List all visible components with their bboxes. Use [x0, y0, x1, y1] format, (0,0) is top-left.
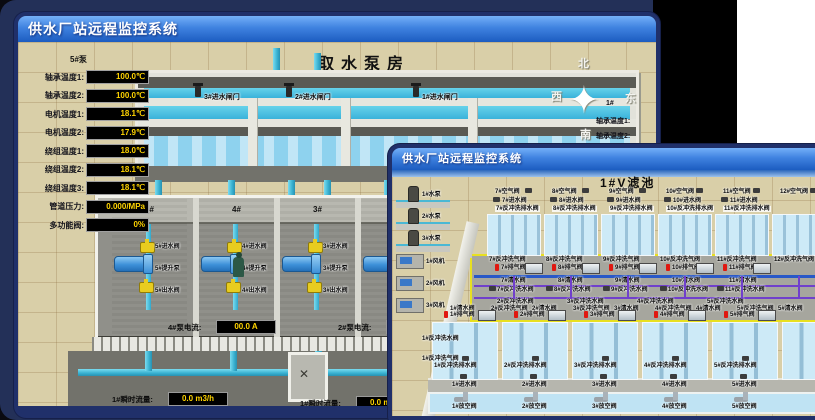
panel-row-value: 17.9℃ — [86, 126, 149, 140]
filter-cell-top[interactable] — [487, 214, 541, 256]
inlet-valve-icon[interactable] — [140, 242, 155, 253]
compass-south: 南 — [580, 126, 591, 142]
drain-valve-icon[interactable] — [602, 356, 609, 361]
inlet-valve-label: 4#进水阀 — [242, 244, 267, 250]
lift-pump-icon[interactable] — [201, 256, 233, 272]
desktop: 供水厂站远程监控系统 取水泵房 — [0, 0, 815, 420]
gate-label: 1#进水闸门 — [422, 94, 458, 101]
pipe-branch — [230, 351, 237, 371]
tank-divider — [341, 98, 350, 169]
inlet-valve-icon[interactable] — [670, 374, 677, 379]
panel-row-value: 18.1℃ — [86, 181, 149, 195]
panel-row-value: 0% — [86, 218, 149, 232]
backwash-water-valve-label: 8#反冲洗水阀 — [554, 287, 591, 293]
panel-row-label: 多功能阀: — [22, 220, 84, 231]
panel-row: 绕组温度2:18.1℃ — [22, 161, 164, 180]
empty-valve-label: 4#放空阀 — [662, 404, 687, 410]
panel-row-label: 轴承温度1: — [22, 72, 84, 83]
backwash-water-valve-label: 9#反冲洗水阀 — [611, 287, 648, 293]
outlet-valve-label: 3#出水阀 — [323, 288, 348, 294]
inlet-valve-label: 3#进水阀 — [592, 382, 617, 388]
panel-row-label: 管道压力: — [22, 201, 84, 212]
panel-row-label: 轴承温度2: — [22, 90, 84, 101]
surge-tank-icon — [618, 310, 636, 321]
tank-water-channel — [144, 106, 630, 119]
surge-tank-icon — [582, 263, 600, 274]
inlet-valve-icon[interactable] — [308, 242, 323, 253]
inlet-valve-icon[interactable] — [600, 374, 607, 379]
flow-meter-label: 1#瞬时流量: — [112, 394, 153, 405]
flow-meter-label: 1#瞬时流量: — [300, 398, 341, 406]
machine-platform — [396, 222, 450, 230]
backwash-pump-icon[interactable] — [408, 208, 419, 224]
backwash-drain-valve-label: 8#反冲洗排水阀 — [552, 206, 597, 212]
filter-cell-top[interactable] — [658, 214, 712, 256]
compass-east: 东 — [625, 90, 636, 106]
flow-meter-device[interactable] — [288, 352, 328, 402]
surge-tank-icon — [548, 310, 566, 321]
outlet-valve-label: 4#出水阀 — [242, 288, 267, 294]
blower-label: 1#风机 — [426, 259, 445, 265]
blower-icon[interactable] — [396, 276, 424, 291]
panel-row: 电机温度1:18.1℃ — [22, 105, 164, 124]
pipe-stub — [324, 180, 331, 196]
inlet-valve-icon[interactable] — [530, 374, 537, 379]
background-white-area — [735, 0, 815, 152]
vent-valve-label: 4#排气阀 — [660, 312, 685, 318]
filter-cell-top[interactable] — [601, 214, 655, 256]
blower-label: 3#风机 — [426, 303, 445, 309]
inlet-valve-label: 4#进水阀 — [662, 382, 687, 388]
backwash-pump-label: 3#水泵 — [422, 236, 441, 242]
vent-valve-label: 3#排气阀 — [590, 312, 615, 318]
backwash-drain-valve-label: 5#反冲洗排水阀 — [714, 363, 757, 369]
surge-tank-icon — [525, 263, 543, 274]
drain-elbow-pipe — [664, 397, 678, 402]
vent-valve-label: 2#排气阀 — [520, 312, 545, 318]
machine-platform — [396, 200, 450, 208]
panel-row: 管道压力:0.000/MPa — [22, 198, 164, 217]
air-valve-label: 7#空气阀 — [495, 189, 520, 195]
air-valve-icon[interactable] — [525, 188, 532, 193]
vent-valve-icon[interactable] — [584, 311, 588, 318]
tank-wall — [138, 77, 636, 88]
tank-wall — [138, 127, 636, 136]
gate-valve-icon[interactable] — [413, 86, 419, 97]
side-panel-label: 轴承温度1: — [596, 116, 630, 126]
backwash-air-valve-label: 11#反冲洗气阀 — [717, 257, 757, 263]
filter-cell-bottom[interactable] — [782, 322, 815, 380]
compass-north: 北 — [578, 55, 589, 71]
surge-tank-icon — [753, 263, 771, 274]
gate-valve-icon[interactable] — [195, 86, 201, 97]
air-valve-label: 9#空气阀 — [609, 189, 634, 195]
air-valve-icon[interactable] — [582, 188, 589, 193]
backwash-drain-valve-label: 7#反冲洗排水阀 — [495, 206, 540, 212]
panel-row-value: 18.1℃ — [86, 107, 149, 121]
panel-row-label: 电机温度2: — [22, 127, 84, 138]
filter-cell-bottom[interactable] — [712, 322, 778, 380]
backwash-water-valve-label: 11#反冲洗水阀 — [725, 287, 765, 293]
pump-data-panel-rows: 轴承温度1:100.0℃轴承温度2:100.0℃电机温度1:18.1℃电机温度2… — [22, 68, 164, 235]
panel-row-label: 电机温度1: — [22, 109, 84, 120]
backwash-drain-valve-label: 11#反冲洗排水阀 — [723, 206, 771, 212]
lift-pump-icon[interactable] — [282, 256, 314, 272]
backwash-water-valve-label: 5#反冲洗水阀 — [707, 299, 744, 305]
vent-valve-icon[interactable] — [666, 264, 670, 271]
backwash-air-valve-label: 12#反冲洗气阀 — [774, 257, 814, 263]
air-valve-label: 10#空气阀 — [666, 189, 694, 195]
vent-valve-icon[interactable] — [724, 311, 728, 318]
machine-platform — [396, 244, 450, 252]
tank-walkway — [138, 119, 636, 127]
inlet-valve-label: 7#进水阀 — [502, 198, 527, 204]
pump-window-titlebar[interactable]: 供水厂站远程监控系统 — [18, 16, 656, 42]
backwash-air-valve-label: 10#反冲洗气阀 — [660, 257, 700, 263]
inlet-valve-icon[interactable] — [607, 197, 614, 202]
panel-row: 多功能阀:0% — [22, 216, 164, 235]
clean-water-valve-label: 10#清水阀 — [672, 278, 700, 284]
air-valve-label: 11#空气阀 — [723, 189, 751, 195]
backwash-air-valve-label: 9#反冲洗气阀 — [603, 257, 640, 263]
background-black-window — [652, 0, 737, 152]
flow-meter-value: 0.0 m3/h — [168, 392, 228, 406]
gate-valve-icon[interactable] — [286, 86, 292, 97]
panel-row: 轴承温度1:100.0℃ — [22, 68, 164, 87]
backwash-water-valve-label: 2#反冲洗水阀 — [497, 299, 534, 305]
outlet-valve-icon[interactable] — [307, 282, 322, 293]
pump-current-value: 00.0 A — [216, 320, 276, 334]
vent-valve-icon[interactable] — [552, 264, 556, 271]
lift-pump-cap — [143, 254, 153, 274]
panel-row: 轴承温度2:100.0℃ — [22, 87, 164, 106]
gate-label: 3#进水闸门 — [204, 94, 240, 101]
panel-row-label: 绕组温度3: — [22, 183, 84, 194]
vent-valve-icon[interactable] — [514, 311, 518, 318]
panel-row-value: 100.0℃ — [86, 89, 149, 103]
surge-tank-icon — [758, 310, 776, 321]
inlet-valve-icon[interactable] — [493, 197, 500, 202]
bay-number-label: 3# — [280, 205, 355, 214]
blower-icon[interactable] — [396, 298, 424, 313]
side-panel-header: 1# — [606, 100, 614, 107]
outlet-valve-icon[interactable] — [226, 282, 241, 293]
filter-cell-top[interactable] — [772, 214, 815, 256]
backwash-valve-icon[interactable] — [717, 286, 724, 291]
lift-pump-cap — [311, 254, 321, 274]
drain-elbow-pipe — [734, 397, 748, 402]
air-valve-icon[interactable] — [810, 188, 815, 193]
main-valve-label: 1#反冲洗水阀 — [422, 336, 459, 342]
pipe-stub — [288, 180, 295, 196]
backwash-branch-pipe — [741, 276, 743, 299]
air-valve-label: 12#空气阀 — [780, 189, 808, 195]
machines-layer: 1#水泵2#水泵3#水泵1#风机2#风机3#风机1#反冲洗水阀1#反冲洗气阀 — [392, 170, 472, 416]
panel-row-value: 18.0℃ — [86, 144, 149, 158]
filter-window-titlebar[interactable]: 供水厂站远程监控系统 — [392, 148, 815, 170]
outlet-valve-icon[interactable] — [139, 282, 154, 293]
panel-row-value: 0.000/MPa — [86, 200, 149, 214]
backwash-drain-valve-label: 2#反冲洗排水阀 — [504, 363, 547, 369]
lift-pump-label: 5#提升泵 — [155, 266, 180, 272]
pipe-stub — [228, 180, 235, 196]
drain-elbow-pipe — [524, 397, 538, 402]
main-valve-label: 1#反冲洗气阀 — [422, 356, 459, 362]
inlet-valve-label: 11#进水阀 — [730, 198, 758, 204]
drain-valve-icon[interactable] — [672, 356, 679, 361]
backwash-branch-pipe — [627, 276, 629, 299]
inlet-valve-icon[interactable] — [721, 197, 728, 202]
air-valve-icon[interactable] — [753, 188, 760, 193]
pump-current-label: 4#泵电流: — [168, 322, 201, 333]
filter-window-title: 供水厂站远程监控系统 — [402, 153, 522, 165]
backwash-pump-icon[interactable] — [408, 186, 419, 202]
backwash-water-valve-label: 10#反冲洗水阀 — [668, 287, 708, 293]
vent-valve-label: 7#排气阀 — [501, 265, 526, 271]
pipe-branch — [145, 351, 152, 371]
filter-cell-top[interactable] — [715, 214, 769, 256]
backwash-pump-icon[interactable] — [408, 230, 419, 246]
backwash-branch-pipe — [684, 276, 686, 299]
window-filter-pool: 供水厂站远程监控系统 1#V滤池 7#空气阀7#进水阀7#反冲洗排水阀8#空气阀… — [388, 144, 815, 420]
panel-row-label: 绕组温度2: — [22, 164, 84, 175]
vent-valve-icon[interactable] — [609, 264, 613, 271]
blower-label: 2#风机 — [426, 281, 445, 287]
panel-row: 电机温度2:17.9℃ — [22, 124, 164, 143]
lift-pump-icon[interactable] — [114, 256, 146, 272]
surge-tank-icon — [696, 263, 714, 274]
panel-row: 绕组温度3:18.1℃ — [22, 179, 164, 198]
backwash-air-valve-label: 8#反冲洗气阀 — [546, 257, 583, 263]
pump-window-title: 供水厂站远程监控系统 — [28, 21, 178, 37]
panel-row-label: 绕组温度1: — [22, 146, 84, 157]
panel-row-value: 18.1℃ — [86, 163, 149, 177]
outlet-valve-label: 5#出水阀 — [155, 288, 180, 294]
drain-elbow-pipe — [594, 397, 608, 402]
filter-cell-bottom[interactable] — [502, 322, 568, 380]
vent-valve-label: 8#排气阀 — [558, 265, 583, 271]
backwash-branch-pipe — [798, 276, 800, 299]
empty-valve-label: 3#放空阀 — [592, 404, 617, 410]
tank-divider — [248, 98, 257, 169]
backwash-valve-icon[interactable] — [489, 286, 496, 291]
gallery-valve-label: 5#清水阀 — [778, 306, 803, 312]
backwash-water-valve-label: 7#反冲洗水阀 — [497, 287, 534, 293]
pump-data-panel: 5#泵 轴承温度1:100.0℃轴承温度2:100.0℃电机温度1:18.1℃电… — [22, 54, 164, 235]
gate-label: 2#进水闸门 — [295, 94, 331, 101]
vent-valve-icon[interactable] — [654, 311, 658, 318]
drain-valve-icon[interactable] — [532, 356, 539, 361]
pump-data-panel-header: 5#泵 — [70, 54, 164, 65]
vent-valve-icon[interactable] — [723, 264, 727, 271]
backwash-water-valve-label: 4#反冲洗水阀 — [637, 299, 674, 305]
vent-valve-label: 9#排气阀 — [615, 265, 640, 271]
backwash-drain-valve-label: 10#反冲洗排水阀 — [666, 206, 714, 212]
inlet-valve-label: 5#进水阀 — [732, 382, 757, 388]
inlet-valve-label: 9#进水阀 — [616, 198, 641, 204]
empty-valve-label: 2#放空阀 — [522, 404, 547, 410]
vent-valve-label: 5#排气阀 — [730, 312, 755, 318]
blower-icon[interactable] — [396, 254, 424, 269]
inlet-valve-label: 8#进水阀 — [559, 198, 584, 204]
inlet-valve-icon[interactable] — [664, 197, 671, 202]
compass-west: 西 — [551, 88, 562, 104]
backwash-pump-label: 2#水泵 — [422, 214, 441, 220]
backwash-valve-icon[interactable] — [603, 286, 610, 291]
backwash-air-valve-label: 7#反冲洗气阀 — [489, 257, 526, 263]
pump-current-label: 2#泵电流: — [338, 322, 371, 333]
pump-bay: 3#3#进水阀3#提升泵3#出水阀 — [274, 198, 355, 340]
backwash-drain-valve-label: 4#反冲洗排水阀 — [644, 363, 687, 369]
filter-scene: 1#V滤池 7#空气阀7#进水阀7#反冲洗排水阀8#空气阀8#进水阀8#反冲洗排… — [392, 170, 815, 416]
backwash-branch-pipe — [513, 276, 515, 299]
backwash-water-valve-label: 3#反冲洗水阀 — [567, 299, 604, 305]
backwash-valve-icon[interactable] — [660, 286, 667, 291]
filter-cell-bottom[interactable] — [642, 322, 708, 380]
surge-tank-icon — [639, 263, 657, 274]
drain-valve-icon[interactable] — [742, 356, 749, 361]
panel-row: 绕组温度1:18.0℃ — [22, 142, 164, 161]
backwash-valve-icon[interactable] — [546, 286, 553, 291]
air-valve-icon[interactable] — [639, 188, 646, 193]
operator-figure — [233, 257, 244, 277]
lift-pump-label: 3#提升泵 — [323, 266, 348, 272]
inlet-valve-label: 10#进水阀 — [673, 198, 701, 204]
surge-tank-icon — [478, 310, 496, 321]
backwash-branch-pipe — [570, 276, 572, 299]
filter-cell-top[interactable] — [544, 214, 598, 256]
panel-row-value: 100.0℃ — [86, 70, 149, 84]
inlet-valve-label: 3#进水阀 — [323, 244, 348, 250]
surge-tank-icon — [688, 310, 706, 321]
backwash-drain-valve-label: 9#反冲洗排水阀 — [609, 206, 654, 212]
backwash-drain-valve-label: 3#反冲洗排水阀 — [574, 363, 617, 369]
vent-valve-icon[interactable] — [495, 264, 499, 271]
lift-pump-label: 4#提升泵 — [242, 266, 267, 272]
air-valve-label: 8#空气阀 — [552, 189, 577, 195]
air-valve-icon[interactable] — [696, 188, 703, 193]
inlet-valve-label: 2#进水阀 — [522, 382, 547, 388]
backwash-pump-label: 1#水泵 — [422, 192, 441, 198]
empty-valve-label: 5#放空阀 — [732, 404, 757, 410]
inlet-valve-icon[interactable] — [740, 374, 747, 379]
side-panel-label: 轴承温度2: — [596, 131, 630, 141]
inlet-valve-icon[interactable] — [550, 197, 557, 202]
filter-cell-bottom[interactable] — [572, 322, 638, 380]
inlet-valve-label: 5#进水阀 — [155, 244, 180, 250]
bay-number-label: 4# — [199, 205, 274, 214]
